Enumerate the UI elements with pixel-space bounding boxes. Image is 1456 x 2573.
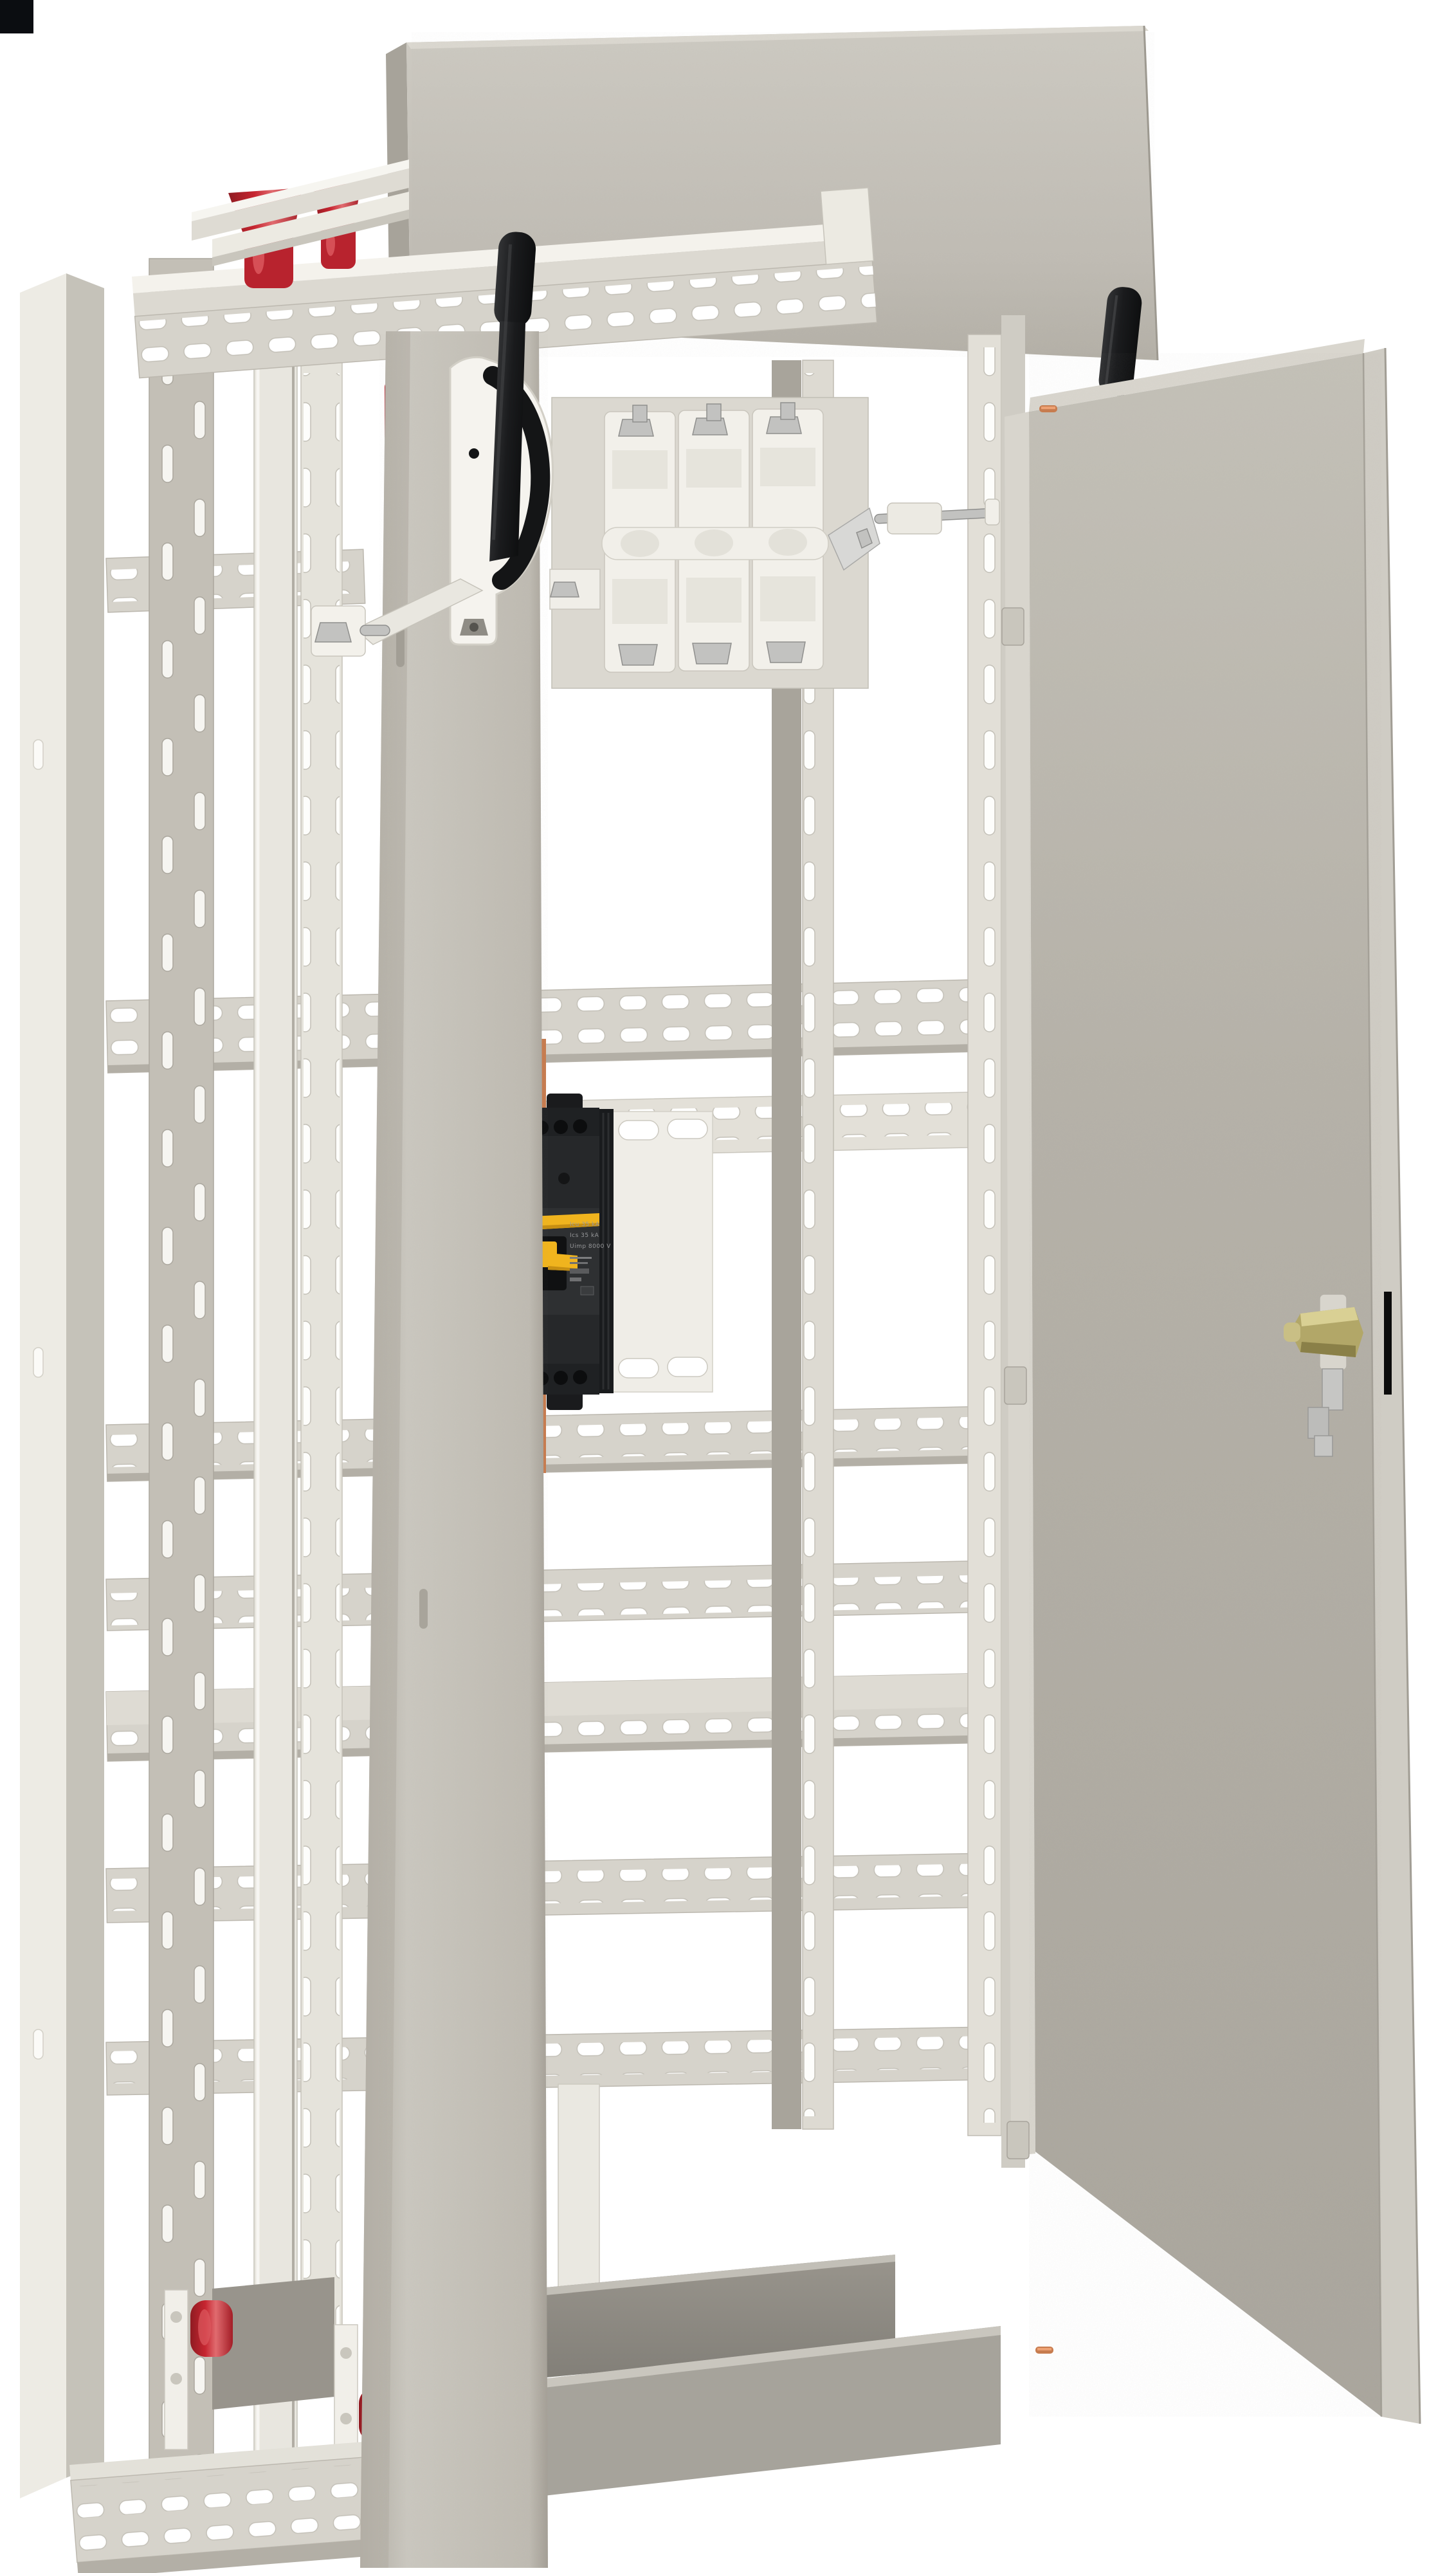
perforated-upright-right (967, 334, 1003, 2136)
post-slot (33, 2029, 43, 2059)
rail-end-block (821, 188, 873, 264)
bottom-insulator (190, 2300, 233, 2357)
post-slot (419, 1589, 428, 1629)
perforated-upright-left (149, 259, 214, 2549)
cabinet-render: Icu 35 kA Ics 35 kA Uimp 8000 V (0, 0, 1456, 2573)
svg-text:Icu 35 kA: Icu 35 kA (570, 1222, 600, 1228)
perforated-strip-upright (301, 360, 342, 2380)
svg-text:Ics 35 kA: Ics 35 kA (570, 1232, 599, 1239)
calibration-square (0, 0, 33, 33)
breaker-mounting-plate (610, 1112, 713, 1392)
lock-keeper-strip (1384, 1292, 1392, 1395)
post-slot (396, 627, 405, 667)
breaker-side-face (599, 1109, 614, 1393)
rear-left-post (20, 273, 104, 2498)
front-left-post (360, 331, 548, 2568)
rod-coupler (887, 503, 942, 534)
circuit-breaker: Icu 35 kA Ics 35 kA Uimp 8000 V (529, 1094, 713, 1410)
door-hinge (1002, 608, 1024, 645)
svg-text:Uimp 8000 V: Uimp 8000 V (570, 1243, 611, 1250)
door (1002, 339, 1420, 2424)
tray-support (558, 2084, 599, 2296)
post-slot (33, 740, 43, 769)
door-hinge (1007, 2121, 1029, 2159)
c-channel-upright (254, 270, 297, 2489)
door-hinge (1005, 1367, 1026, 1404)
post-slot (33, 1348, 43, 1377)
